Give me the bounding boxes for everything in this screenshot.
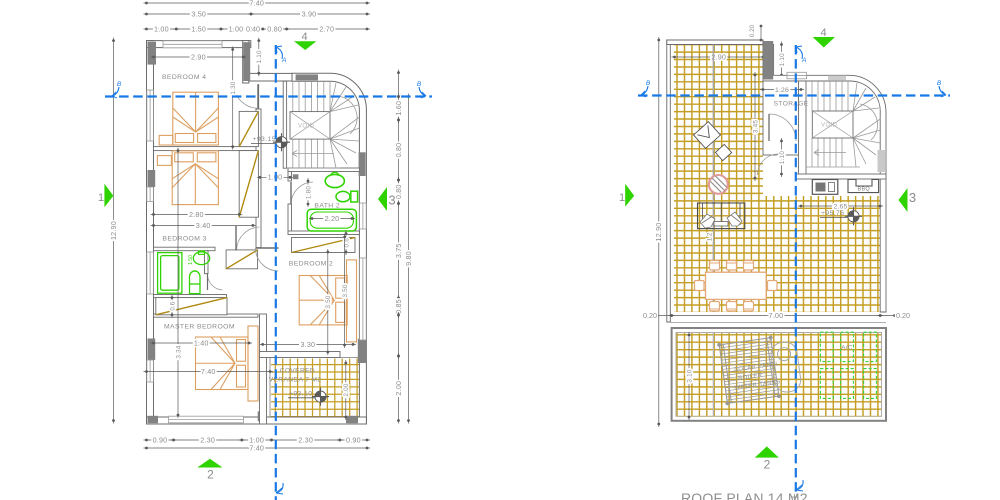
svg-text:3.90: 3.90 (302, 9, 317, 18)
svg-text:BATH 2: BATH 2 (314, 203, 340, 210)
svg-text:1.40: 1.40 (194, 338, 209, 347)
svg-text:2.90: 2.90 (191, 52, 206, 61)
svg-text:A: A (281, 57, 286, 64)
svg-text:9.80: 9.80 (404, 251, 413, 266)
svg-text:2.00: 2.00 (343, 383, 350, 396)
svg-text:0.6: 0.6 (170, 301, 176, 310)
svg-text:BEDROOM 2: BEDROOM 2 (289, 261, 333, 268)
svg-text:1.80: 1.80 (305, 186, 312, 199)
svg-text:3.50: 3.50 (191, 9, 206, 18)
svg-text:STORAGE: STORAGE (774, 101, 809, 108)
svg-text:2.80: 2.80 (189, 210, 204, 219)
svg-text:0.80: 0.80 (267, 24, 282, 33)
svg-text:2: 2 (764, 458, 771, 472)
svg-text:12.90: 12.90 (109, 221, 118, 240)
svg-text:COVERED: COVERED (280, 368, 315, 375)
svg-text:VOID: VOID (821, 123, 838, 129)
svg-text:A: A (801, 57, 806, 64)
svg-text:2.20: 2.20 (325, 214, 340, 223)
svg-text:B: B (417, 81, 422, 88)
svg-text:2.00: 2.00 (394, 381, 403, 396)
svg-text:3.34: 3.34 (175, 345, 182, 358)
svg-text:1.10: 1.10 (779, 53, 786, 66)
svg-text:BBQ: BBQ (858, 186, 871, 192)
svg-text:2: 2 (207, 468, 214, 482)
svg-text:1.2: 1.2 (707, 232, 714, 241)
svg-text:1.26: 1.26 (775, 87, 789, 94)
svg-text:1.10: 1.10 (256, 50, 263, 63)
svg-text:12.90: 12.90 (654, 223, 663, 242)
svg-text:0.90: 0.90 (346, 435, 361, 444)
svg-text:3: 3 (909, 190, 916, 205)
svg-text:1.00: 1.00 (229, 24, 244, 33)
svg-text:7.40: 7.40 (249, 443, 264, 452)
svg-text:1.60: 1.60 (394, 101, 403, 116)
svg-text:+93.10: +93.10 (289, 390, 312, 397)
svg-text:VOID: VOID (298, 124, 315, 130)
svg-text:0.20: 0.20 (896, 311, 910, 320)
svg-text:+95.75: +95.75 (821, 210, 844, 217)
svg-text:1: 1 (619, 192, 625, 204)
svg-text:1.10: 1.10 (779, 151, 786, 164)
svg-text:BEDROOM 4: BEDROOM 4 (162, 74, 206, 81)
svg-text:MASTER BEDROOM: MASTER BEDROOM (164, 324, 235, 331)
svg-text:A/C: A/C (841, 345, 853, 352)
svg-text:0.20: 0.20 (643, 311, 657, 320)
svg-text:2.70: 2.70 (319, 24, 334, 33)
svg-text:1.00: 1.00 (154, 24, 169, 33)
svg-text:B: B (937, 80, 942, 87)
svg-text:0.85: 0.85 (394, 299, 403, 314)
svg-text:B: B (646, 80, 651, 87)
svg-text:7.00: 7.00 (769, 311, 784, 320)
svg-text:2.30: 2.30 (200, 435, 215, 444)
svg-text:0.40: 0.40 (246, 24, 260, 33)
svg-text:3.50: 3.50 (325, 295, 332, 308)
svg-text:7.40: 7.40 (249, 0, 264, 7)
svg-text:3.50: 3.50 (342, 284, 349, 297)
svg-text:BEDROOM 3: BEDROOM 3 (162, 236, 206, 243)
svg-text:1.50: 1.50 (191, 24, 206, 33)
svg-text:3.40: 3.40 (196, 221, 211, 230)
svg-text:3: 3 (388, 193, 395, 208)
svg-text:3.75: 3.75 (394, 243, 403, 258)
svg-text:0.90: 0.90 (153, 435, 168, 444)
svg-text:2.30: 2.30 (298, 435, 313, 444)
svg-text:7.40: 7.40 (201, 367, 216, 376)
svg-text:3.10: 3.10 (686, 369, 693, 382)
svg-text:ROOF PLAN 14 M2: ROOF PLAN 14 M2 (681, 490, 808, 500)
svg-text:3.45: 3.45 (752, 120, 759, 133)
svg-text:1: 1 (98, 192, 104, 204)
svg-text:3.30: 3.30 (300, 340, 315, 349)
svg-text:B: B (117, 81, 122, 88)
svg-text:0.20: 0.20 (749, 24, 756, 37)
svg-text:4: 4 (301, 31, 307, 43)
svg-text:4: 4 (820, 27, 826, 39)
svg-text:+93.15: +93.15 (253, 136, 276, 143)
svg-text:+: + (791, 490, 798, 500)
svg-text:0.80: 0.80 (394, 143, 403, 158)
svg-text:1.30: 1.30 (230, 81, 237, 94)
svg-text:1.50: 1.50 (188, 255, 194, 265)
